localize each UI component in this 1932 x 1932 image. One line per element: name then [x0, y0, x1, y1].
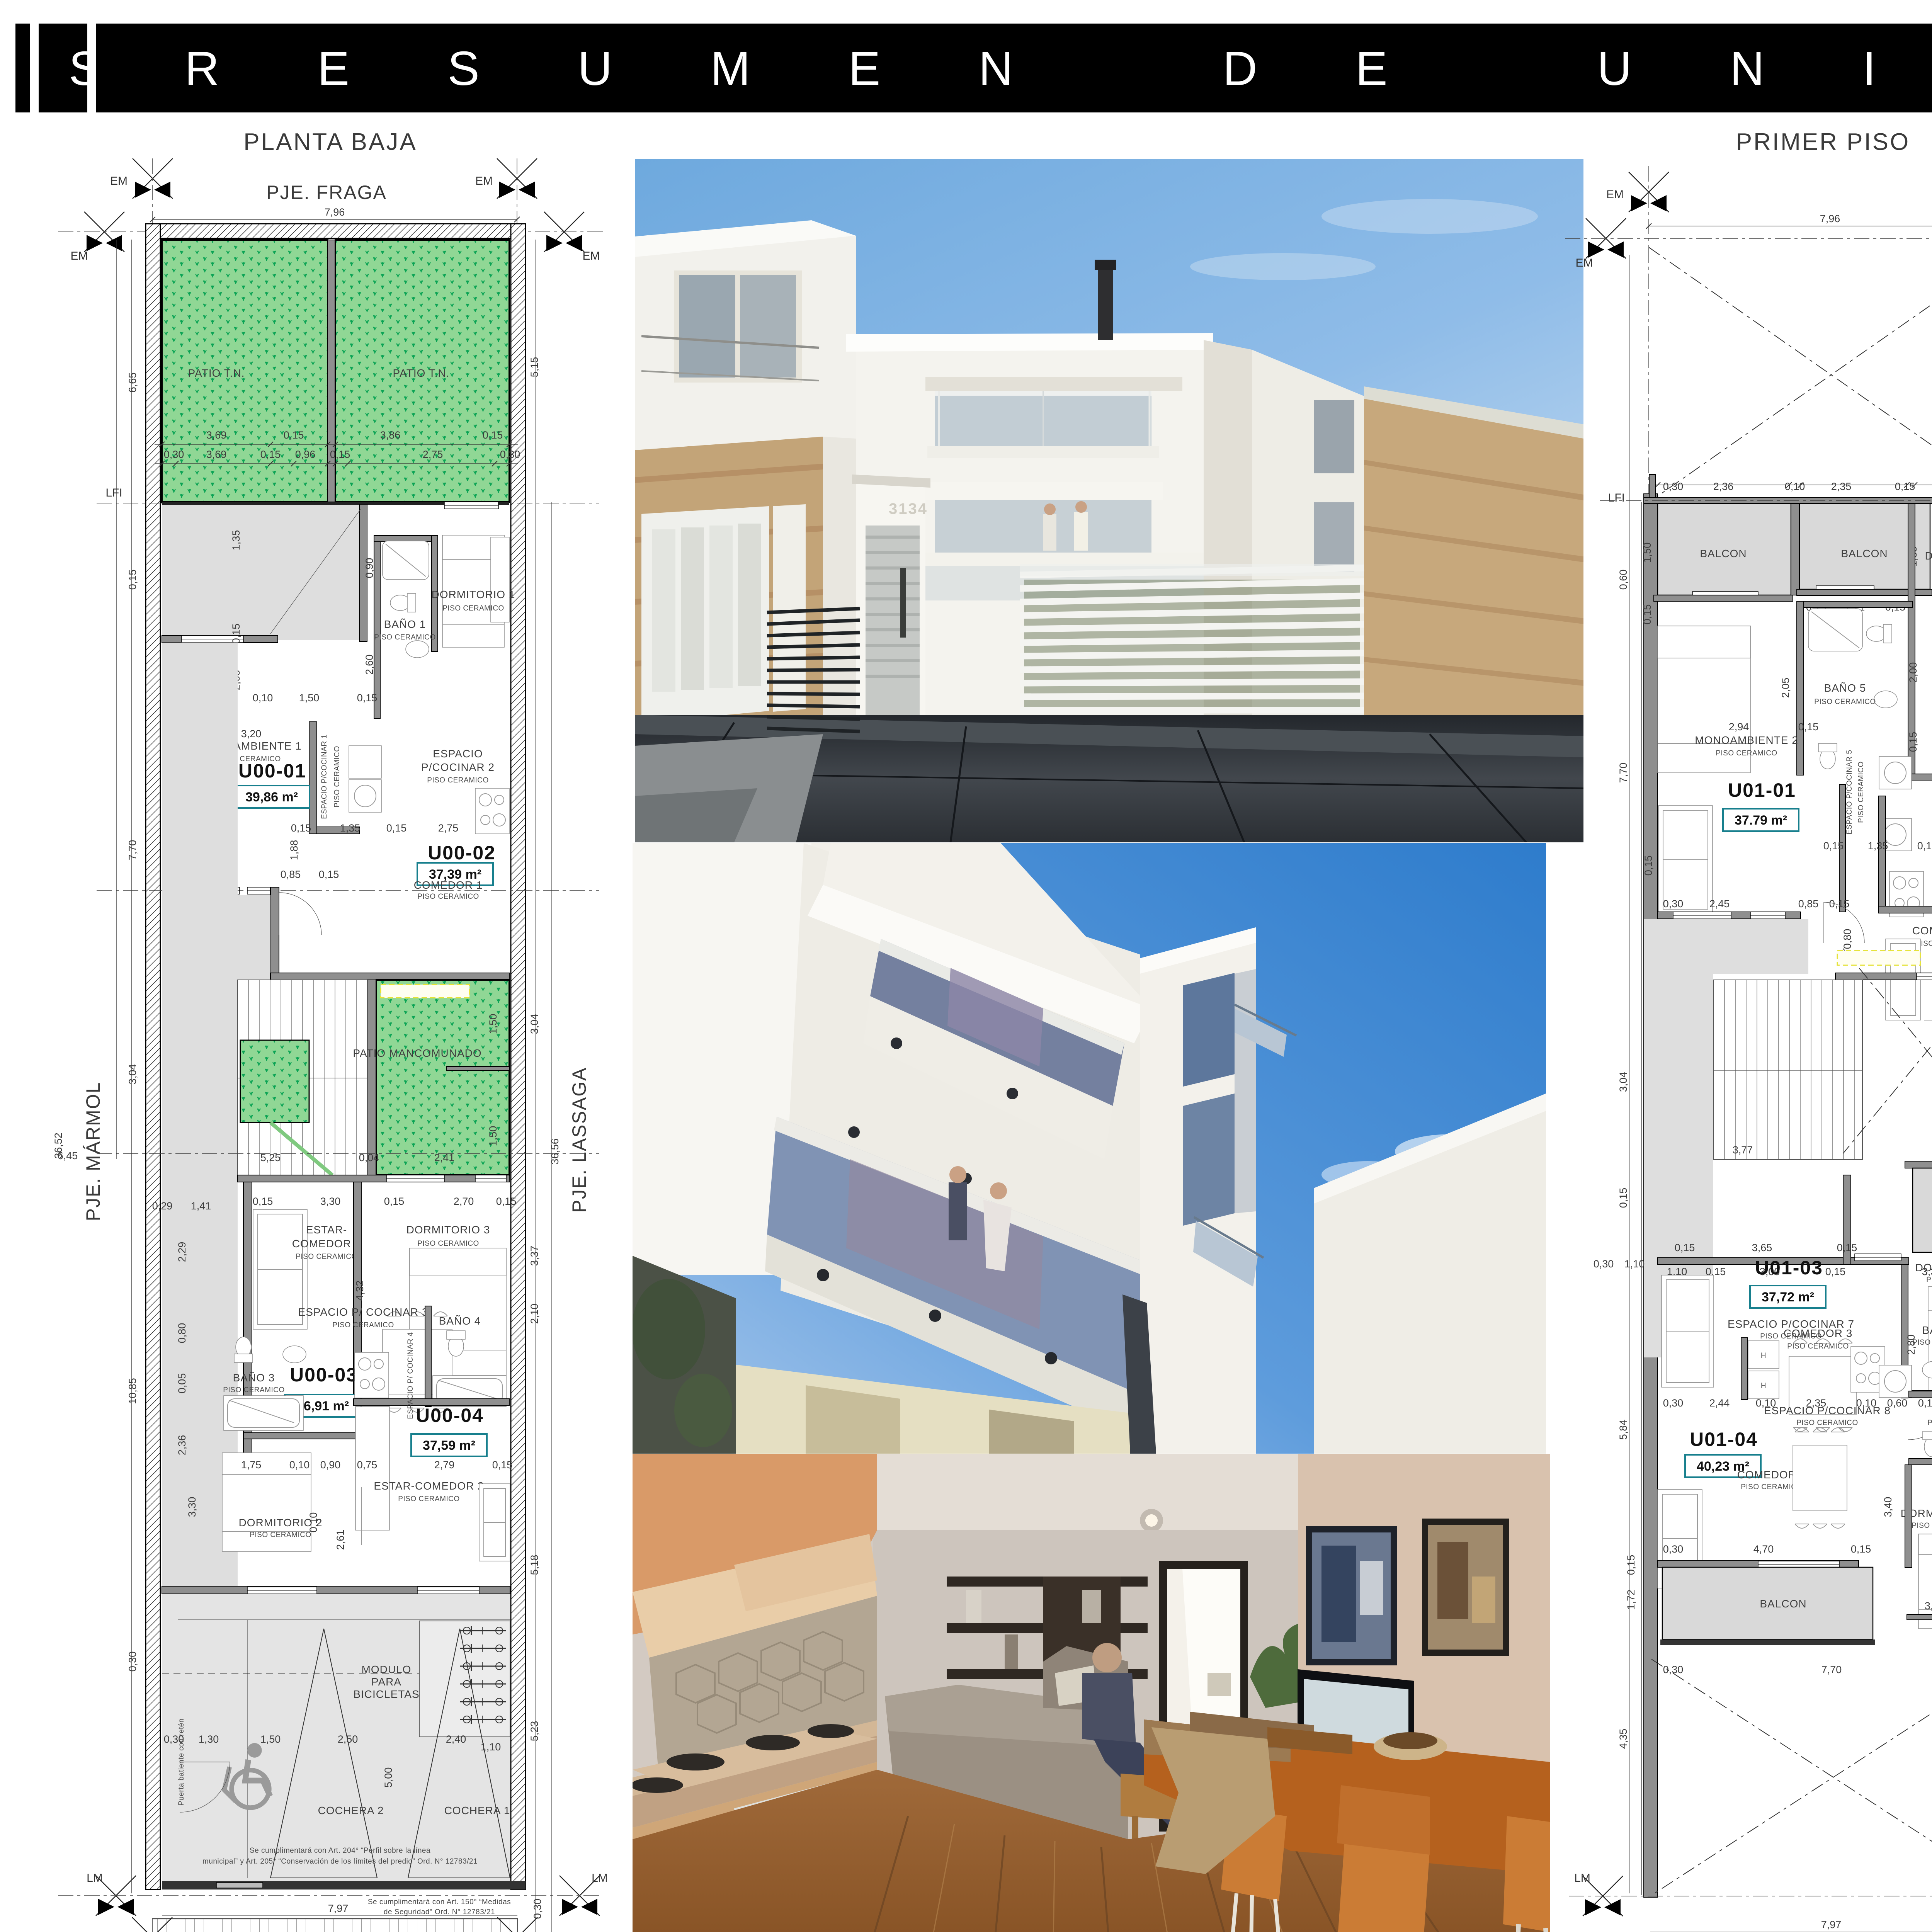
svg-text:municipal” y Art. 205° “Conser: municipal” y Art. 205° “Conservación de … — [202, 1857, 478, 1866]
svg-text:3,04: 3,04 — [127, 1064, 138, 1085]
svg-text:0,75: 0,75 — [357, 1459, 378, 1471]
svg-text:de Seguridad" Ord. N° 12783/21: de Seguridad" Ord. N° 12783/21 — [384, 1908, 495, 1916]
svg-text:0,15: 0,15 — [492, 1459, 513, 1471]
svg-text:0,80: 0,80 — [1842, 929, 1853, 949]
svg-text:PISO CERAMICO: PISO CERAMICO — [427, 776, 489, 784]
svg-text:Se cumplimentará con Art. 204°: Se cumplimentará con Art. 204° “Perfil s… — [250, 1847, 430, 1855]
svg-text:6,45: 6,45 — [58, 1150, 78, 1162]
svg-text:MONOAMBIENTE 2: MONOAMBIENTE 2 — [1695, 734, 1798, 746]
svg-text:1,30: 1,30 — [199, 1733, 219, 1745]
svg-text:BAÑO 7: BAÑO 7 — [1922, 1324, 1932, 1336]
svg-text:0,15: 0,15 — [1675, 1242, 1695, 1253]
svg-text:0,15: 0,15 — [260, 449, 281, 460]
svg-text:0,05: 0,05 — [176, 1373, 188, 1394]
svg-text:0,15: 0,15 — [230, 624, 242, 644]
svg-text:0,15: 0,15 — [1641, 604, 1653, 625]
svg-text:PISO CERAMICO: PISO CERAMICO — [296, 1253, 357, 1261]
svg-text:1,50: 1,50 — [299, 692, 320, 704]
svg-text:PISO CERAMICO: PISO CERAMICO — [1912, 1522, 1932, 1530]
svg-text:0,15: 0,15 — [1643, 855, 1654, 876]
svg-text:1,88: 1,88 — [288, 840, 300, 861]
svg-text:COMEDOR 1: COMEDOR 1 — [292, 1238, 361, 1250]
svg-text:0,90: 0,90 — [320, 1459, 341, 1471]
svg-text:H: H — [1761, 1352, 1766, 1360]
svg-text:PISO CERAMICO: PISO CERAMICO — [417, 1240, 479, 1248]
svg-text:3,69: 3,69 — [206, 449, 227, 460]
svg-text:LM: LM — [1574, 1872, 1590, 1884]
svg-text:3,04: 3,04 — [1617, 1072, 1629, 1092]
svg-text:36,56: 36,56 — [549, 1138, 561, 1165]
svg-text:DORMITORIO 4: DORMITORIO 4 — [1925, 550, 1932, 562]
svg-text:PISO CERAMICO: PISO CERAMICO — [223, 1386, 285, 1394]
svg-text:U01-01: U01-01 — [1728, 779, 1796, 801]
svg-text:0,15: 0,15 — [1625, 1555, 1637, 1575]
svg-text:0,30: 0,30 — [1663, 1397, 1684, 1409]
svg-text:0,30: 0,30 — [164, 449, 184, 460]
svg-text:0,90: 0,90 — [364, 558, 375, 578]
svg-text:7,97: 7,97 — [328, 1903, 349, 1914]
svg-text:1,35: 1,35 — [1868, 840, 1888, 852]
svg-text:LM: LM — [592, 1872, 608, 1884]
svg-text:4,70: 4,70 — [1753, 1543, 1774, 1555]
svg-text:PISO CERAMICO: PISO CERAMICO — [374, 633, 436, 641]
svg-text:1,35: 1,35 — [230, 530, 242, 551]
svg-text:ESPACIO P/COCINAR 7: ESPACIO P/COCINAR 7 — [1728, 1318, 1854, 1330]
svg-text:0,15: 0,15 — [284, 429, 304, 441]
svg-text:0,15: 0,15 — [384, 1196, 405, 1207]
svg-text:3,30: 3,30 — [320, 1196, 341, 1207]
svg-text:3,86: 3,86 — [380, 429, 401, 441]
svg-text:EM: EM — [110, 175, 128, 187]
svg-text:DORMITORIO 3: DORMITORIO 3 — [406, 1224, 490, 1236]
svg-text:4,32: 4,32 — [354, 1281, 366, 1301]
svg-text:0,10: 0,10 — [253, 692, 273, 704]
svg-text:PJE. LASSAGA: PJE. LASSAGA — [568, 1067, 590, 1213]
svg-text:LFI: LFI — [1608, 492, 1625, 504]
svg-text:P/COCINAR 2: P/COCINAR 2 — [421, 761, 495, 773]
svg-text:1,35: 1,35 — [340, 822, 361, 834]
svg-text:0,15: 0,15 — [1825, 1266, 1846, 1277]
svg-text:3,20: 3,20 — [241, 728, 262, 740]
svg-text:5,00: 5,00 — [383, 1767, 394, 1788]
svg-text:0,96: 0,96 — [295, 449, 316, 460]
svg-text:MODULO: MODULO — [362, 1663, 412, 1675]
svg-text:5,15: 5,15 — [529, 357, 540, 378]
svg-text:EM: EM — [475, 175, 493, 187]
svg-text:0,15: 0,15 — [1617, 1188, 1629, 1208]
svg-text:3,77: 3,77 — [1733, 1144, 1753, 1156]
svg-text:H: H — [1761, 1382, 1766, 1390]
svg-text:DORMITORIO 5: DORMITORIO 5 — [1915, 1262, 1932, 1274]
svg-text:PISO CERAMICO: PISO CERAMICO — [1927, 1419, 1932, 1427]
svg-text:2,75: 2,75 — [423, 449, 443, 460]
svg-text:PATIO T.N.: PATIO T.N. — [188, 367, 245, 379]
svg-text:ESPACIO P/ COCINAR 3: ESPACIO P/ COCINAR 3 — [298, 1306, 429, 1318]
svg-text:2,50: 2,50 — [338, 1733, 358, 1745]
svg-text:PISO CERAMICO: PISO CERAMICO — [250, 1531, 311, 1539]
svg-text:PISO CERAMICO: PISO CERAMICO — [1814, 698, 1876, 706]
svg-text:COCHERA 2: COCHERA 2 — [318, 1804, 384, 1816]
svg-text:3,00: 3,00 — [1925, 1600, 1932, 1612]
svg-text:PISO CERAMICO: PISO CERAMICO — [333, 746, 341, 808]
svg-text:LFI: LFI — [105, 486, 122, 499]
svg-text:0,85: 0,85 — [1798, 898, 1819, 910]
svg-text:1,72: 1,72 — [1625, 1590, 1637, 1610]
svg-text:BALCON: BALCON — [1760, 1598, 1806, 1610]
svg-text:0,30: 0,30 — [1663, 481, 1684, 492]
svg-text:37,72 m²: 37,72 m² — [1762, 1290, 1814, 1304]
svg-text:7,96: 7,96 — [1820, 213, 1840, 224]
svg-text:COMEDOR 2: COMEDOR 2 — [1912, 925, 1932, 937]
svg-text:7,96: 7,96 — [325, 206, 345, 218]
svg-text:ESPACIO P/COCINAR 1: ESPACIO P/COCINAR 1 — [320, 734, 328, 819]
svg-text:6,65: 6,65 — [127, 372, 138, 393]
svg-text:1,50: 1,50 — [487, 1014, 499, 1034]
svg-text:0,15: 0,15 — [496, 1196, 517, 1207]
svg-text:0,30: 0,30 — [1663, 1664, 1684, 1675]
svg-text:1,50: 1,50 — [1641, 543, 1653, 563]
svg-text:0,80: 0,80 — [176, 1323, 188, 1344]
svg-text:37.79 m²: 37.79 m² — [1735, 813, 1787, 828]
svg-text:2,94: 2,94 — [1729, 721, 1749, 733]
svg-text:2,61: 2,61 — [335, 1530, 346, 1550]
svg-text:ESPACIO P/COCINAR 8: ESPACIO P/COCINAR 8 — [1764, 1405, 1891, 1417]
svg-text:PISO CERAMICO: PISO CERAMICO — [398, 1495, 460, 1503]
svg-text:0,15: 0,15 — [291, 822, 311, 834]
svg-text:0,15: 0,15 — [483, 429, 503, 441]
svg-text:0,15: 0,15 — [330, 449, 350, 460]
svg-text:3,37: 3,37 — [529, 1246, 540, 1266]
svg-text:0,10: 0,10 — [289, 1459, 310, 1471]
svg-text:0,30: 0,30 — [1594, 1258, 1614, 1270]
svg-text:COMEDOR 1: COMEDOR 1 — [414, 879, 483, 891]
svg-text:7,70: 7,70 — [1617, 763, 1629, 783]
svg-text:EM: EM — [71, 250, 88, 262]
svg-text:U00-02: U00-02 — [428, 842, 496, 864]
svg-text:ESTAR-COMEDOR 2: ESTAR-COMEDOR 2 — [374, 1480, 484, 1492]
svg-text:PISO CERAMICO: PISO CERAMICO — [1760, 1332, 1822, 1340]
svg-text:RESUMEN DE UNIDADES: RESUMEN DE UNIDADES — [185, 42, 1932, 95]
svg-text:2,44: 2,44 — [1709, 1397, 1730, 1409]
svg-text:2,45: 2,45 — [1709, 898, 1730, 910]
svg-text:0,15: 0,15 — [319, 869, 339, 880]
svg-text:2,79: 2,79 — [434, 1459, 455, 1471]
svg-text:2,75: 2,75 — [438, 822, 459, 834]
svg-text:PLANTA BAJA: PLANTA BAJA — [243, 129, 417, 155]
svg-text:PATIO MANCOMUNADO: PATIO MANCOMUNADO — [353, 1047, 481, 1059]
svg-text:0,15: 0,15 — [253, 1196, 273, 1207]
svg-text:2,40: 2,40 — [446, 1733, 466, 1745]
svg-text:2,36: 2,36 — [176, 1435, 188, 1456]
svg-text:ESTAR-: ESTAR- — [306, 1224, 347, 1236]
svg-text:39,86 m²: 39,86 m² — [245, 790, 298, 804]
svg-text:PISO CERAMICO: PISO CERAMICO — [1716, 749, 1777, 757]
svg-text:PISO CERAMICO: PISO CERAMICO — [1787, 1342, 1849, 1350]
svg-text:2,00: 2,00 — [1907, 662, 1919, 683]
svg-text:0,15: 0,15 — [1917, 840, 1932, 852]
svg-text:PISO CERAMICO: PISO CERAMICO — [442, 604, 504, 612]
svg-text:ESPACIO P/ COCINAR 4: ESPACIO P/ COCINAR 4 — [406, 1332, 415, 1419]
svg-text:PATIO T.N.: PATIO T.N. — [393, 367, 450, 379]
svg-text:0,10: 0,10 — [1785, 481, 1805, 492]
svg-text:PISO CERAMICO: PISO CERAMICO — [1796, 1419, 1858, 1427]
svg-text:1,50: 1,50 — [260, 1733, 281, 1745]
svg-text:5,23: 5,23 — [529, 1721, 540, 1742]
svg-text:0,30: 0,30 — [1663, 1543, 1684, 1555]
svg-text:PISO CERAMICO: PISO CERAMICO — [1926, 1276, 1932, 1284]
svg-text:BALCON: BALCON — [1700, 548, 1747, 560]
svg-text:U00-03: U00-03 — [290, 1364, 358, 1386]
svg-text:0,15: 0,15 — [1918, 1397, 1932, 1409]
svg-text:PRIMER PISO: PRIMER PISO — [1736, 129, 1910, 155]
svg-text:PJE. MÁRMOL: PJE. MÁRMOL — [82, 1082, 104, 1221]
svg-text:PJE. FRAGA: PJE. FRAGA — [266, 182, 387, 203]
svg-text:2,60: 2,60 — [364, 655, 375, 675]
svg-text:0,85: 0,85 — [281, 869, 301, 880]
svg-text:0,15: 0,15 — [357, 692, 378, 704]
svg-text:2,36: 2,36 — [1713, 481, 1734, 492]
svg-text:1,75: 1,75 — [241, 1459, 262, 1471]
svg-text:0,60: 0,60 — [1617, 570, 1629, 590]
svg-text:DORMITORIO 1: DORMITORIO 1 — [432, 588, 515, 600]
svg-text:0,15: 0,15 — [1823, 840, 1844, 852]
svg-text:7,70: 7,70 — [127, 840, 138, 861]
svg-text:0,15: 0,15 — [1837, 1242, 1857, 1253]
svg-text:0,30: 0,30 — [500, 449, 520, 460]
svg-text:BAÑO 3: BAÑO 3 — [233, 1372, 275, 1384]
svg-text:BAÑO 5: BAÑO 5 — [1824, 682, 1866, 694]
svg-text:EM: EM — [1576, 257, 1593, 269]
svg-text:0,15: 0,15 — [1851, 1543, 1871, 1555]
svg-text:3,40: 3,40 — [1882, 1497, 1894, 1517]
svg-text:BALCON: BALCON — [1841, 548, 1888, 560]
svg-text:0,30: 0,30 — [1663, 898, 1684, 910]
svg-text:U01-04: U01-04 — [1690, 1429, 1758, 1450]
svg-text:2,10: 2,10 — [529, 1304, 540, 1324]
svg-text:PARA: PARA — [371, 1676, 401, 1688]
svg-text:5,18: 5,18 — [529, 1555, 540, 1575]
svg-text:BAÑO 4: BAÑO 4 — [439, 1315, 481, 1327]
svg-text:COCHERA 1: COCHERA 1 — [444, 1804, 510, 1816]
svg-text:PISO CERAMICO: PISO CERAMICO — [1857, 761, 1865, 823]
svg-text:1,41: 1,41 — [191, 1200, 211, 1212]
svg-text:3134: 3134 — [889, 500, 928, 517]
svg-text:1,50: 1,50 — [487, 1126, 499, 1146]
svg-text:4,35: 4,35 — [1617, 1729, 1629, 1749]
svg-text:ESPACIO P/COCINAR 5: ESPACIO P/COCINAR 5 — [1845, 750, 1854, 834]
svg-text:Se cumplimentará con Art. 150°: Se cumplimentará con Art. 150° “Medidas — [368, 1898, 511, 1906]
svg-text:7,70: 7,70 — [1821, 1664, 1842, 1675]
svg-text:1,10: 1,10 — [1624, 1258, 1645, 1270]
svg-text:EM: EM — [1606, 188, 1624, 201]
svg-text:0,10: 0,10 — [308, 1512, 319, 1533]
svg-text:0,15: 0,15 — [386, 822, 407, 834]
svg-text:3,04: 3,04 — [529, 1014, 540, 1034]
svg-text:0,30: 0,30 — [532, 1899, 543, 1919]
svg-text:2,05: 2,05 — [1780, 678, 1791, 698]
svg-text:3,65: 3,65 — [1752, 1242, 1772, 1253]
svg-text:ESPACIO: ESPACIO — [433, 748, 483, 760]
svg-text:U00-04: U00-04 — [416, 1405, 484, 1426]
svg-text:U01-03: U01-03 — [1755, 1257, 1823, 1279]
svg-text:7,97: 7,97 — [1821, 1919, 1842, 1930]
svg-text:3,30: 3,30 — [186, 1497, 198, 1517]
svg-text:2,29: 2,29 — [176, 1242, 188, 1262]
svg-text:0,15: 0,15 — [127, 570, 138, 590]
svg-text:0,30: 0,30 — [127, 1651, 138, 1672]
svg-text:PISO CERAMICO: PISO CERAMICO — [332, 1321, 394, 1329]
svg-text:LM: LM — [87, 1872, 103, 1884]
svg-text:PISO CERAMICO: PISO CERAMICO — [417, 893, 479, 901]
svg-text:BICICLETAS: BICICLETAS — [353, 1688, 419, 1700]
svg-text:U00-01: U00-01 — [238, 760, 306, 782]
svg-text:0,15: 0,15 — [1895, 481, 1915, 492]
svg-text:5,84: 5,84 — [1617, 1420, 1629, 1440]
svg-text:37,59 m²: 37,59 m² — [423, 1438, 475, 1453]
svg-text:0,15: 0,15 — [1829, 898, 1850, 910]
svg-text:2,70: 2,70 — [454, 1196, 474, 1207]
svg-text:0,15: 0,15 — [1907, 732, 1919, 752]
svg-text:10,85: 10,85 — [127, 1378, 138, 1404]
svg-text:BAÑO 1: BAÑO 1 — [384, 618, 426, 630]
svg-text:36,91 m²: 36,91 m² — [296, 1399, 349, 1413]
svg-text:3,69: 3,69 — [206, 429, 227, 441]
svg-text:2,35: 2,35 — [1831, 481, 1852, 492]
svg-text:0,15: 0,15 — [1798, 721, 1819, 733]
svg-text:PISO CERAMICO: PISO CERAMICO — [1912, 1338, 1932, 1347]
svg-text:0,29: 0,29 — [152, 1200, 173, 1212]
svg-text:EM: EM — [583, 250, 600, 262]
